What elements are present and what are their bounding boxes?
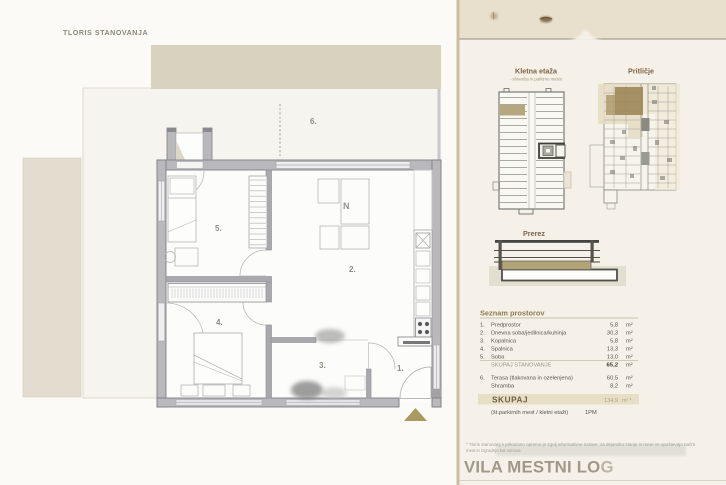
svg-text:Terasa (tlakovana in ozelenjen: Terasa (tlakovana in ozelenjena) [491,376,573,382]
svg-text:mest in izgradnjo kot osnova: mest in izgradnjo kot osnova [466,448,521,453]
svg-text:134,9: 134,9 [604,398,618,404]
svg-text:5.: 5. [480,355,485,361]
svg-text:m²: m² [626,355,633,361]
svg-text:3.: 3. [319,361,326,370]
svg-text:TLORIS STANOVANJA: TLORIS STANOVANJA [63,29,148,37]
svg-text:m²: m² [626,376,633,382]
svg-text:m²: m² [626,363,633,369]
svg-text:Predprostor: Predprostor [491,323,521,329]
svg-text:(št.parkirnih mest / kletni et: (št.parkirnih mest / kletni etaži) [491,410,568,416]
svg-text:6.: 6. [480,376,485,382]
svg-text:6.: 6. [310,117,317,126]
svg-text:Pritličje: Pritličje [628,67,654,76]
svg-text:SKUPAJ: SKUPAJ [492,396,528,405]
svg-text:2.: 2. [480,331,485,337]
svg-text:4.: 4. [216,318,223,327]
svg-text:30,3: 30,3 [607,331,618,337]
svg-text:Dnevna soba/jedilnica/kuhinja: Dnevna soba/jedilnica/kuhinja [491,331,567,337]
svg-text:m²: m² [626,339,633,345]
svg-text:Shramba: Shramba [491,384,515,390]
svg-text:1PM: 1PM [585,410,597,416]
svg-text:m²: m² [626,347,633,353]
svg-text:2.: 2. [349,265,356,274]
svg-text:5,8: 5,8 [610,339,618,345]
svg-text:m²: m² [626,331,633,337]
svg-text:m² *: m² * [622,398,632,404]
svg-text:13,3: 13,3 [607,347,618,353]
svg-text:60,5: 60,5 [607,376,618,382]
svg-text:1.: 1. [397,364,404,373]
svg-text:Spalnica: Spalnica [491,347,514,353]
svg-text:Seznam prostorov: Seznam prostorov [480,309,545,318]
svg-text:3.: 3. [480,339,485,345]
svg-text:8,2: 8,2 [610,384,618,390]
svg-text:* Tloris stanovanj s prikazano: * Tloris stanovanj s prikazano opremo je… [466,442,695,447]
svg-text:5.: 5. [215,224,222,233]
svg-text:Kopalnica: Kopalnica [491,339,517,345]
svg-text:N: N [343,201,350,211]
svg-text:1.: 1. [480,323,485,329]
svg-text:13,0: 13,0 [607,355,618,361]
svg-text:65,2: 65,2 [607,363,619,369]
svg-text:Soba: Soba [491,355,505,361]
svg-text:SKUPAJ STANOVANJE: SKUPAJ STANOVANJE [491,363,552,369]
svg-text:Kletna etaža: Kletna etaža [515,67,558,76]
svg-text:5,8: 5,8 [610,323,618,329]
svg-text:m²: m² [626,384,633,390]
svg-text:m²: m² [626,323,633,329]
svg-text:- shramba in parkirno mesto: - shramba in parkirno mesto [510,77,563,82]
svg-text:4.: 4. [480,347,485,353]
svg-text:Prerez: Prerez [523,229,545,238]
svg-text:VILA MESTNI LOG: VILA MESTNI LOG [464,458,614,477]
